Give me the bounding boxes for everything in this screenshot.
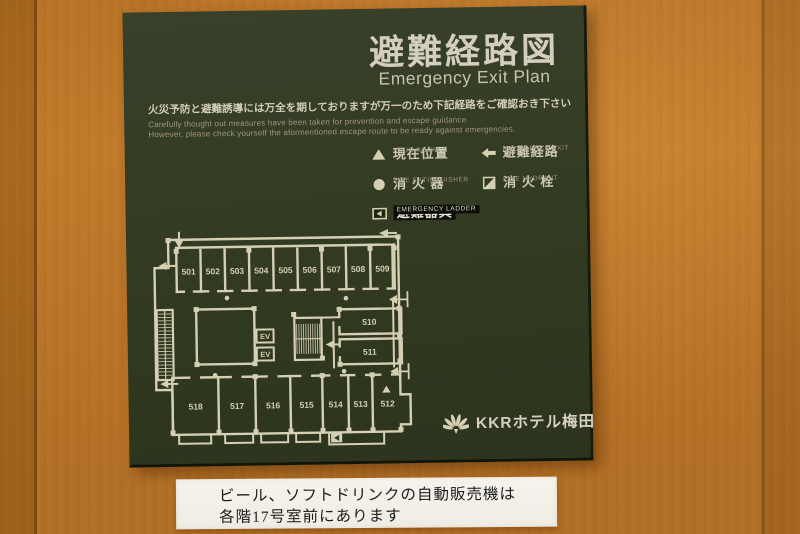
brand-name: KKRホテル梅田	[476, 409, 595, 433]
room-number: 511	[363, 347, 377, 357]
legend-caption: FIRE EXTINGUISHER	[393, 176, 469, 184]
kkr-logo-icon	[443, 410, 469, 434]
room-number: 505	[278, 265, 293, 275]
room-number: 502	[206, 266, 221, 276]
room-number: 501	[181, 267, 196, 277]
emergency-exit-sign-panel: 避難経路図 Emergency Exit Plan 火災予防と避難誘導には万全を…	[122, 5, 593, 467]
room-numbers: 501 502 503 504 505 506 507 508 509 510 …	[181, 263, 395, 411]
elevator-label: EV	[260, 350, 270, 359]
legend-item-fire-hydrant: 消 火 栓FIRE HYDRANT	[481, 175, 503, 190]
legend-caption: EMERGENCY EXIT	[503, 145, 570, 153]
room-number: 506	[303, 265, 318, 275]
floor-plan: 501 502 503 504 505 506 507 508 509 510 …	[146, 226, 426, 466]
photo-of-wall: 避難経路図 Emergency Exit Plan 火災予防と避難誘導には万全を…	[0, 0, 800, 534]
fire-hydrant-square-icon	[481, 176, 497, 190]
notice-english: Carefully thought out measures have been…	[148, 114, 578, 141]
legend-caption: FIRE HYDRANT	[503, 175, 558, 183]
current-position-marker	[382, 386, 391, 393]
vending-machine-paper-note: ビール、ソフトドリンクの自動販売機は 各階17号室前にあります	[176, 477, 557, 530]
room-number: 510	[362, 317, 377, 327]
room-number: 504	[254, 265, 269, 275]
emergency-ladder-marker	[331, 433, 342, 442]
legend-caption: EMERGENCY LADDER	[394, 205, 480, 214]
room-number: 518	[188, 401, 203, 411]
current-position-triangle-icon	[371, 148, 387, 162]
paper-note-line1: ビール、ソフトドリンクの自動販売機は	[219, 482, 516, 506]
legend-caption: YOUR ROOM	[393, 147, 439, 155]
legend-item-your-room: 現在位置YOUR ROOM	[371, 146, 393, 161]
sign-title-english: Emergency Exit Plan	[345, 65, 583, 90]
room-number: 513	[353, 399, 368, 409]
legend-item-emergency-ladder: 避難器具EMERGENCY LADDER	[372, 205, 394, 220]
legend-item-fire-extinguisher: 消 火 器FIRE EXTINGUISHER	[371, 176, 393, 191]
fire-extinguisher-circle-icon	[371, 178, 387, 192]
room-number: 514	[328, 399, 343, 409]
elevator-label: EV	[260, 332, 270, 341]
room-number: 508	[351, 264, 366, 274]
room-number: 509	[375, 264, 390, 274]
room-number: 503	[230, 266, 245, 276]
legend-item-emergency-exit: 避難経路EMERGENCY EXIT	[481, 145, 503, 160]
escape-route-arrow-icon	[481, 146, 497, 160]
room-number: 515	[299, 400, 314, 410]
room-number: 516	[266, 400, 281, 410]
room-number: 512	[380, 398, 395, 408]
paper-note-line2: 各階17号室前にあります	[219, 504, 402, 527]
brand-block: KKRホテル梅田	[443, 405, 603, 438]
room-number: 507	[327, 264, 342, 274]
room-number: 517	[230, 401, 245, 411]
emergency-ladder-box-icon	[372, 207, 388, 221]
